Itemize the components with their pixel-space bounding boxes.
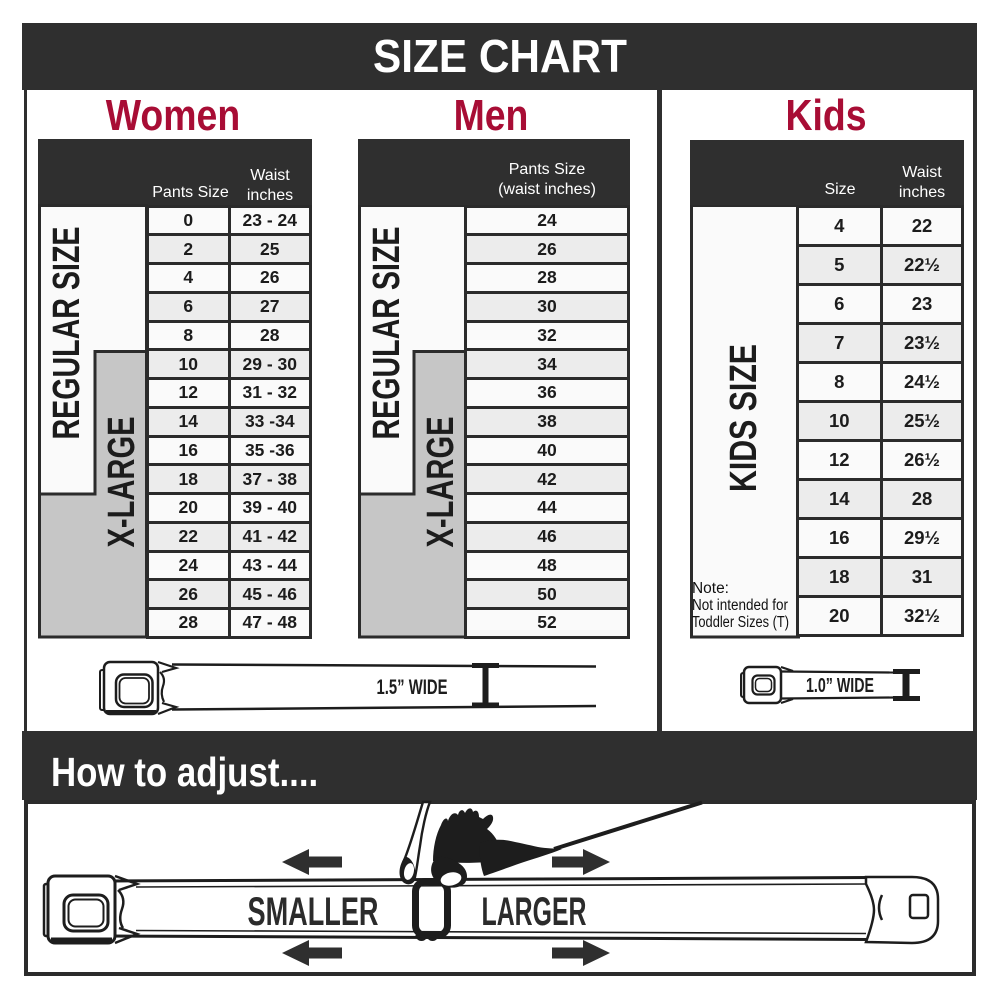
svg-text:1.0” WIDE: 1.0” WIDE [806, 674, 874, 697]
svg-text:LARGER: LARGER [482, 890, 587, 934]
svg-text:SMALLER: SMALLER [248, 890, 379, 934]
svg-text:1.5” WIDE: 1.5” WIDE [377, 675, 448, 699]
